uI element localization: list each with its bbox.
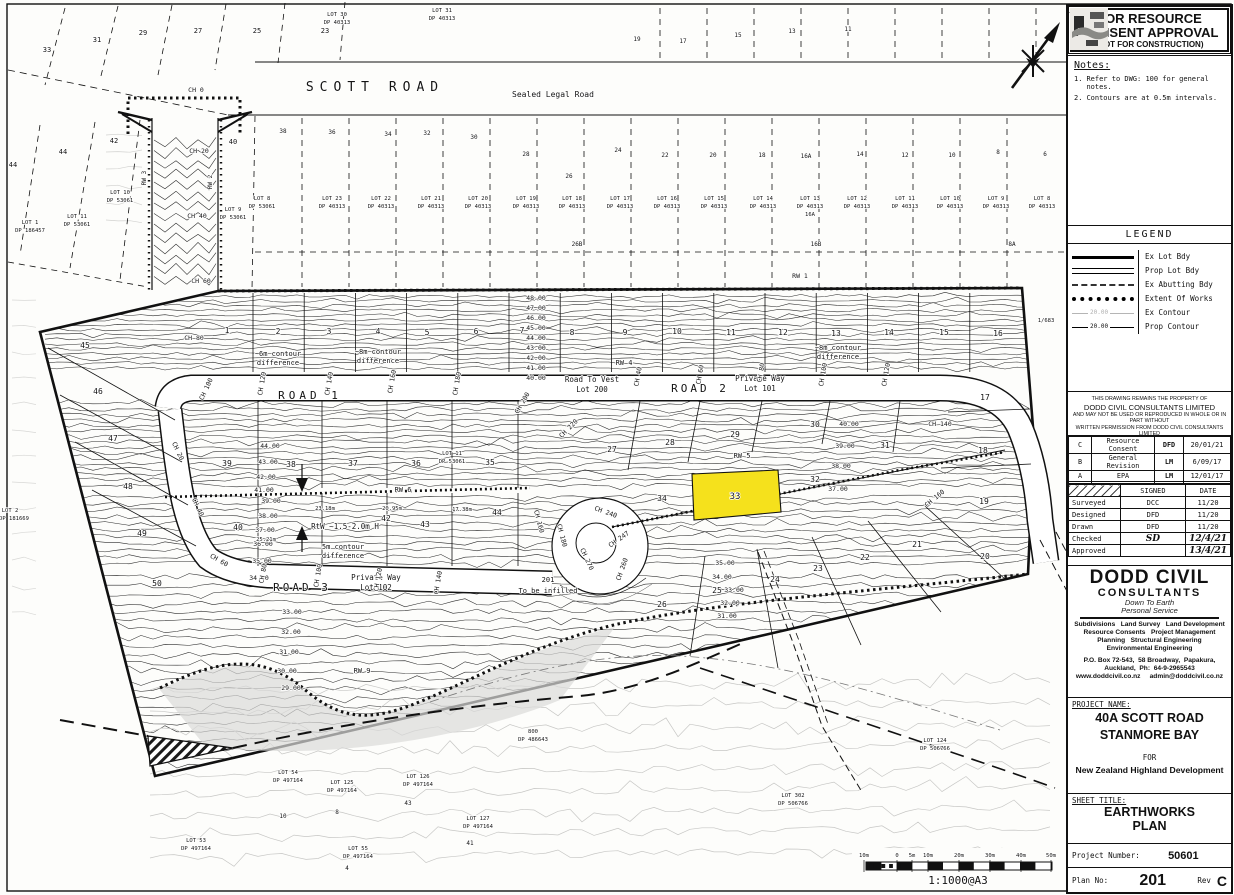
drawing-label: 32: [810, 475, 820, 484]
ex-abutting-bdy-sample: [1072, 284, 1134, 286]
drawing-label: 13: [788, 28, 796, 35]
drawing-label: 34.00: [712, 573, 732, 581]
drawing-label: CH 0: [188, 86, 204, 94]
scale-tick: 10m: [923, 853, 934, 859]
drawing-label: LOT 55: [348, 846, 368, 852]
drawing-label: DP 40313: [844, 204, 871, 210]
drawing-label: 20: [980, 552, 990, 561]
drawing-label: LOT 30: [327, 12, 347, 18]
drawing-label: LOT 21: [421, 196, 441, 202]
drawing-label: CH 220: [557, 417, 579, 439]
drawing-label: 24: [614, 147, 622, 154]
drawing-label: 40.00: [839, 420, 859, 428]
drawing-label: difference: [817, 353, 859, 361]
drawing-label: 17.38m: [452, 507, 473, 513]
drawing-label: RW 6: [395, 486, 412, 494]
drawing-label: 10: [948, 152, 956, 159]
drawing-label: 32.00: [281, 628, 301, 636]
drawing-label: LOT 10: [940, 196, 960, 202]
drawing-label: 28: [665, 438, 675, 447]
drawing-label: LOT 12: [847, 196, 867, 202]
drawing-label: 5m contour: [322, 543, 364, 551]
drawing-label: LOT 53: [186, 838, 206, 844]
drawing-label: RW 5: [734, 452, 751, 460]
drawing-label: 19: [633, 36, 641, 43]
firm-name: DODD CIVIL: [1072, 568, 1227, 587]
drawing-label: 1: [225, 326, 230, 335]
plan-number-row: Plan No: 201 Rev C: [1068, 868, 1231, 893]
drawing-label: LOT 17: [610, 196, 630, 202]
drawing-label: Lot 200: [576, 385, 608, 394]
drawing-label: DP 53061: [249, 204, 276, 210]
drawing-label: LOT 9: [225, 207, 242, 213]
legend-box: LEGEND Ex Lot Bdy Prop Lot Bdy Ex Abutti…: [1068, 226, 1231, 392]
drawing-label: 42: [110, 137, 118, 145]
drawing-label: LOT 19: [516, 196, 536, 202]
drawing-label: 40.00: [526, 374, 546, 382]
firm-address-line: P.O. Box 72-543, 58 Broadway, Papakura,: [1072, 657, 1227, 665]
drawing-label: 16A: [805, 212, 816, 218]
road-3-label: ROAD 3: [273, 581, 331, 594]
firm-service-line: Environmental Engineering: [1072, 645, 1227, 653]
legend-item-label: Ex Lot Bdy: [1138, 250, 1231, 264]
scale-ratio: 1:1000@A3: [928, 874, 988, 887]
drawing-label: 2: [276, 327, 281, 336]
drawing-label: LOT 11: [895, 196, 915, 202]
drawing-label: 35: [485, 458, 495, 467]
revision-row: BGeneral RevisionLM6/09/17: [1069, 454, 1231, 471]
drawing-label: 44: [9, 161, 17, 169]
drawing-label: Road To Vest: [565, 375, 619, 384]
drawing-label: 9: [623, 328, 628, 337]
drawing-label: CH 160: [923, 488, 946, 509]
firm-service-line: Subdivisions Land Survey Land Developmen…: [1072, 621, 1227, 629]
drawing-label: 29.00: [281, 684, 301, 692]
scale-tick: 20m: [954, 853, 965, 859]
drawing-label: LOT 2: [2, 508, 19, 514]
drawing-label: 31: [93, 36, 101, 44]
drawing-label: 22: [860, 553, 870, 562]
drawing-label: 26: [657, 600, 667, 609]
scale-tick: 30m: [985, 853, 996, 859]
drawing-label: LOT 126: [406, 774, 429, 780]
scale-tick: 40m: [1016, 853, 1027, 859]
drawing-label: DP 40313: [368, 204, 395, 210]
drawing-label: 43.00: [258, 458, 278, 466]
drawing-label: 36: [328, 129, 336, 136]
copyright-line: THIS DRAWING REMAINS THE PROPERTY OF: [1071, 396, 1228, 403]
legend-item: Ex Lot Bdy: [1068, 250, 1231, 264]
drawing-label: DP 53061: [439, 459, 466, 465]
sheet-title-line1: EARTHWORKS: [1072, 805, 1227, 819]
drawing-label: 43: [420, 520, 430, 529]
drawing-label: LOT 1: [22, 220, 39, 226]
drawing-label: ~8m contour: [355, 348, 401, 356]
drawing-label: 38.00: [258, 512, 278, 520]
drawing-label: RW 1: [792, 272, 808, 280]
drawing-label: 44: [492, 508, 502, 517]
drawing-label: LOT 8: [1034, 196, 1051, 202]
drawing-label: LOT 18: [562, 196, 582, 202]
drawing-label: RW 2: [207, 174, 214, 189]
drawing-label: 16A: [801, 153, 812, 160]
drawing-label: 50: [152, 579, 162, 588]
drawing-label: 32.00: [720, 599, 740, 607]
revision-row: CResource ConsentDFD20/01/21: [1069, 437, 1231, 454]
project-number-row: Project Number: 50601: [1068, 844, 1231, 868]
drawing-label: 45.00: [526, 324, 546, 332]
drawing-label: DP 40313: [418, 204, 445, 210]
legend-item: Ex Abutting Bdy: [1068, 278, 1231, 292]
drawing-label: LOT 127: [466, 816, 489, 822]
drawing-label: ~8m contour: [815, 344, 861, 352]
drawing-label: 33.00: [724, 586, 744, 594]
drawing-label: 3: [327, 327, 332, 336]
drawing-label: 8A: [1008, 241, 1016, 248]
legend-item-label: Prop Contour: [1138, 320, 1231, 334]
drawing-label: 10: [279, 813, 287, 820]
legend-item: Extent Of Works: [1068, 292, 1231, 306]
drawing-label: CH 20: [189, 147, 209, 155]
drawing-label: CH 140: [928, 420, 952, 428]
drawing-label: 6: [1043, 151, 1047, 158]
drawing-label: DP 53061: [220, 215, 247, 221]
project-number-label: Project Number:: [1072, 851, 1140, 860]
drawing-label: LOT 10: [110, 190, 130, 196]
earthworks-plan-sheet: 10m05m10m20m30m40m50m1:1000@A3SCOTT ROAD…: [0, 0, 1234, 895]
drawing-label: 27: [607, 445, 617, 454]
prop-lot-bdy-sample: [1072, 268, 1134, 274]
drawing-label: LOT 125: [330, 780, 353, 786]
prop-contour-sample: 20.00: [1072, 327, 1134, 328]
legend-item: 20.00 Ex Contour: [1068, 306, 1231, 320]
drawing-label: 20: [709, 152, 717, 159]
notes-heading: Notes:: [1074, 60, 1225, 71]
signoff-row: Approved13/4/21: [1069, 545, 1231, 557]
project-name-label: PROJECT NAME:: [1072, 700, 1227, 709]
drawing-label: 8: [996, 149, 1000, 156]
drawing-label: 37: [348, 459, 358, 468]
note-item: 2.Contours are at 0.5m intervals.: [1074, 94, 1225, 102]
drawing-label: CH 160: [532, 509, 546, 534]
drawing-label: 800: [528, 729, 538, 735]
legend-item-label: Prop Lot Bdy: [1138, 264, 1231, 278]
drawing-label: DP 40313: [607, 204, 634, 210]
drawing-label: 17: [679, 38, 687, 45]
drawing-label: 15: [734, 32, 742, 39]
drawing-label: LOT 20: [468, 196, 488, 202]
drawing-label: 42: [381, 514, 391, 523]
site-plan-drawing: 10m05m10m20m30m40m50m1:1000@A3SCOTT ROAD…: [0, 0, 1234, 895]
drawing-label: difference: [357, 357, 399, 365]
drawing-label: DP 486643: [518, 737, 548, 743]
drawing-label: ~6m contour: [255, 350, 301, 358]
drawing-label: DP 40313: [513, 204, 540, 210]
drawing-label: 33.00: [282, 608, 302, 616]
project-name-box: PROJECT NAME: 40A SCOTT ROAD STANMORE BA…: [1068, 698, 1231, 794]
drawing-label: RW 3: [141, 170, 148, 185]
drawing-label: 38: [286, 460, 296, 469]
drawing-label: 6: [474, 327, 479, 336]
ex-lot-bdy-sample: [1072, 256, 1134, 259]
drawing-label: 29: [730, 430, 740, 439]
drawing-label: 39.00: [261, 497, 281, 505]
drawing-label: 26B: [572, 241, 583, 248]
copyright-line: DODD CIVIL CONSULTANTS LIMITED: [1071, 403, 1228, 412]
drawing-label: LOT 15: [704, 196, 724, 202]
drawing-label: RW 4: [616, 359, 633, 367]
drawing-label: 48.00: [526, 294, 546, 302]
project-name-line2: STANMORE BAY: [1072, 728, 1227, 743]
drawing-label: DP 40313: [750, 204, 777, 210]
drawing-label: DP 40313: [1029, 204, 1056, 210]
drawing-label: 10: [672, 327, 682, 336]
firm-service-line: Resource Consents Project Management: [1072, 629, 1227, 637]
drawing-label: DP 497164: [403, 782, 433, 788]
drawing-label: 1/683: [1038, 318, 1055, 324]
drawing-label: 38.00: [831, 462, 851, 470]
drawing-label: LOT 11: [442, 451, 462, 457]
drawing-label: 34: [384, 131, 392, 138]
drawing-label: 36: [411, 459, 421, 468]
legend-item-label: Ex Contour: [1138, 306, 1231, 320]
scale-tick: 5m: [909, 853, 916, 859]
drawing-label: 32: [423, 130, 431, 137]
drawing-label: CH 60: [191, 277, 211, 285]
legend-item-label: Ex Abutting Bdy: [1138, 278, 1231, 292]
firm-tagline: Personal Service: [1072, 607, 1227, 615]
firm-service-line: Planning Structural Engineering: [1072, 637, 1227, 645]
drawing-label: 40: [229, 138, 237, 146]
firm-services: Subdivisions Land Survey Land Developmen…: [1072, 621, 1227, 653]
drawing-label: 26: [565, 173, 573, 180]
drawing-label: LOT 11: [67, 214, 87, 220]
drawing-label: difference: [257, 359, 299, 367]
drawing-label: LOT 22: [371, 196, 391, 202]
drawing-label: difference: [322, 552, 364, 560]
drawing-label: 4: [376, 327, 381, 336]
drawing-label: 44: [59, 148, 67, 156]
drawing-label: LOT 8: [254, 196, 271, 202]
drawing-label: 31: [880, 441, 890, 450]
copyright-line: WRITTEN PERMISSION FROM DODD CIVIL CONSU…: [1071, 425, 1228, 437]
drawing-label: 42.00: [526, 354, 546, 362]
drawing-label: 30: [810, 420, 820, 429]
revision-table: CResource ConsentDFD20/01/21BGeneral Rev…: [1068, 436, 1231, 484]
drawing-label: RW 9: [354, 667, 371, 675]
drawing-label: 33: [43, 46, 51, 54]
note-item: 1.Refer to DWG: 100 for general notes.: [1074, 75, 1225, 91]
plan-number-value: 201: [1108, 872, 1197, 890]
firm-block: DODD CIVIL CONSULTANTS Down To Earth Per…: [1068, 566, 1231, 698]
title-block: FOR RESOURCE CONSENT APPROVAL (NOT FOR C…: [1066, 4, 1233, 894]
drawing-label: 17: [980, 393, 990, 402]
drawing-label: 20.95m: [382, 506, 403, 512]
drawing-label: 47: [108, 434, 118, 443]
drawing-label: DP 497164: [181, 846, 211, 852]
drawing-label: Lot 101: [744, 384, 776, 393]
extent-of-works-sample: [1072, 297, 1134, 301]
sealed-legal-road-label: Sealed Legal Road: [512, 90, 594, 99]
drawing-label: 37.00: [828, 485, 848, 493]
drawing-label: LOT 31: [432, 8, 452, 14]
drawing-label: DP 40313: [429, 16, 456, 22]
scale-tick: 0: [895, 853, 898, 859]
road-1-label: ROAD 1: [278, 389, 342, 402]
drawing-label: 24: [770, 575, 780, 584]
project-name-line1: 40A SCOTT ROAD: [1072, 711, 1227, 726]
drawing-label: 18: [978, 446, 988, 455]
drawing-label: DP 506766: [920, 746, 950, 752]
scale-tick: 10m: [859, 853, 870, 859]
project-client: New Zealand Highland Development: [1072, 765, 1227, 775]
drawing-label: LOT 124: [923, 738, 947, 744]
signoff-row: DrawnDFD11/20: [1069, 521, 1231, 533]
drawing-label: 11: [844, 26, 852, 33]
drawing-label: 14: [856, 151, 864, 158]
drawing-label: LOT 16: [657, 196, 677, 202]
drawing-label: 18: [758, 152, 766, 159]
drawing-label: 35.00: [715, 559, 735, 567]
revision-row: AEPALM12/01/17: [1069, 471, 1231, 482]
drawing-label: DP 40313: [701, 204, 728, 210]
drawing-label: 23.18m: [315, 506, 336, 512]
drawing-label: DP 497164: [273, 778, 303, 784]
drawing-label: 201: [542, 576, 555, 584]
firm-address: P.O. Box 72-543, 58 Broadway, Papakura,A…: [1072, 657, 1227, 681]
signoff-row: DesignedDFD11/20: [1069, 509, 1231, 521]
drawing-label: RtW ~1.5-2.0m H: [311, 522, 379, 531]
drawing-label: LOT 13: [800, 196, 820, 202]
drawing-label: DP 186457: [15, 228, 45, 234]
sheet-title-line2: PLAN: [1072, 819, 1227, 833]
drawing-label: DP 497164: [463, 824, 493, 830]
drawing-label: 37.00: [255, 526, 275, 534]
drawing-label: 15: [939, 328, 949, 337]
drawing-label: DP 181669: [0, 516, 29, 522]
drawing-label: DP 40313: [319, 204, 346, 210]
drawing-label: DP 40313: [654, 204, 681, 210]
drawing-label: 25: [253, 27, 261, 35]
drawing-label: 22: [661, 152, 669, 159]
drawing-label: 8: [335, 809, 339, 816]
drawing-label: DP 497164: [327, 788, 357, 794]
drawing-label: DP 40313: [465, 204, 492, 210]
plan-number-label: Plan No:: [1072, 876, 1108, 885]
drawing-label: 14: [884, 328, 894, 337]
drawing-label: 43: [404, 800, 412, 807]
project-number-value: 50601: [1140, 850, 1227, 862]
drawing-label: 8: [570, 328, 575, 337]
copyright-line: AND MAY NOT BE USED OR REPRODUCED IN WHO…: [1071, 412, 1228, 425]
sheet-title-label: SHEET TITLE:: [1072, 796, 1227, 805]
drawing-label: 34: [657, 494, 667, 503]
drawing-label: 48: [123, 482, 133, 491]
drawing-label: DP 497164: [343, 854, 373, 860]
drawing-label: 42.00: [256, 473, 276, 481]
highlighted-lot-33-label: 33: [730, 492, 741, 502]
drawing-label: 31.00: [279, 648, 299, 656]
drawing-label: DP 40313: [797, 204, 824, 210]
drawing-label: 39: [222, 459, 232, 468]
drawing-label: 4: [345, 865, 349, 872]
ex-contour-sample: 20.00: [1072, 313, 1134, 314]
legend-item: 20.00 Prop Contour: [1068, 320, 1231, 334]
drawing-label: 40: [233, 523, 243, 532]
drawing-label: LOT 9: [988, 196, 1005, 202]
drawing-label: DP 40313: [892, 204, 919, 210]
drawing-label: DP 53061: [64, 222, 91, 228]
drawing-label: 25.21m: [256, 537, 277, 543]
drawing-label: DP 40313: [983, 204, 1010, 210]
drawing-label: LOT 14: [753, 196, 774, 202]
legend-item: Prop Lot Bdy: [1068, 264, 1231, 278]
drawing-label: 21: [912, 540, 922, 549]
drawing-label: 27: [194, 27, 202, 35]
drawing-label: 47.00: [526, 304, 546, 312]
drawing-label: LOT 54: [278, 770, 299, 776]
drawing-label: 29: [139, 29, 147, 37]
drawing-label: 5: [425, 328, 430, 337]
drawing-label: 30.00: [277, 667, 297, 675]
drawing-label: 46: [93, 387, 103, 396]
drawing-label: 38: [279, 128, 287, 135]
drawing-label: 43.00: [526, 344, 546, 352]
notes-list: 1.Refer to DWG: 100 for general notes.2.…: [1074, 75, 1225, 102]
drawing-label: DP 40313: [937, 204, 964, 210]
rev-label: Rev: [1197, 876, 1211, 885]
drawing-label: 31.00: [717, 612, 737, 620]
drawing-label: DP 506766: [778, 801, 808, 807]
drawing-label: 41.00: [526, 364, 546, 372]
drawing-label: 41.00: [254, 486, 274, 494]
firm-address-line: Auckland, Ph: 64-9-2965543: [1072, 665, 1227, 673]
scale-tick: 50m: [1046, 853, 1057, 859]
drawing-label: 19: [979, 497, 989, 506]
drawing-label: 44.00: [526, 334, 546, 342]
drawing-label: 44.00: [260, 442, 280, 450]
drawing-label: LOT 302: [781, 793, 804, 799]
signoff-table: SIGNEDDATESurveyedDCC11/20DesignedDFD11/…: [1068, 484, 1231, 566]
drawing-label: DP 40313: [559, 204, 586, 210]
drawing-label: 12: [901, 152, 909, 159]
drawing-label: 28: [522, 151, 530, 158]
signoff-row: SurveyedDCC11/20: [1069, 497, 1231, 509]
drawing-label: CH 80: [184, 334, 204, 342]
project-for-label: FOR: [1072, 753, 1227, 762]
drawing-label: 30: [470, 134, 478, 141]
copyright-note: THIS DRAWING REMAINS THE PROPERTY OF DOD…: [1068, 392, 1231, 436]
drawing-label: 23: [321, 27, 329, 35]
drawing-label: 49: [137, 529, 147, 538]
drawing-label: 7: [520, 326, 525, 335]
drawing-label: DP 53061: [107, 198, 134, 204]
drawing-label: 46.00: [526, 314, 546, 322]
rev-value: C: [1217, 873, 1227, 889]
drawing-label: 45: [80, 341, 90, 350]
legend-rows: Ex Lot Bdy Prop Lot Bdy Ex Abutting Bdy …: [1068, 244, 1231, 334]
signoff-header-row: SIGNEDDATE: [1069, 485, 1231, 497]
drawing-label: 16: [993, 329, 1003, 338]
drawing-label: 13: [831, 329, 841, 338]
drawing-label: DP 40313: [324, 20, 351, 26]
drawing-label: 12: [778, 328, 788, 337]
drawing-label: 23: [813, 564, 823, 573]
legend-heading: LEGEND: [1068, 226, 1231, 244]
drawing-label: CH 40: [187, 212, 207, 220]
drawing-label: 11: [726, 328, 736, 337]
drawing-label: 39.00: [835, 442, 855, 450]
